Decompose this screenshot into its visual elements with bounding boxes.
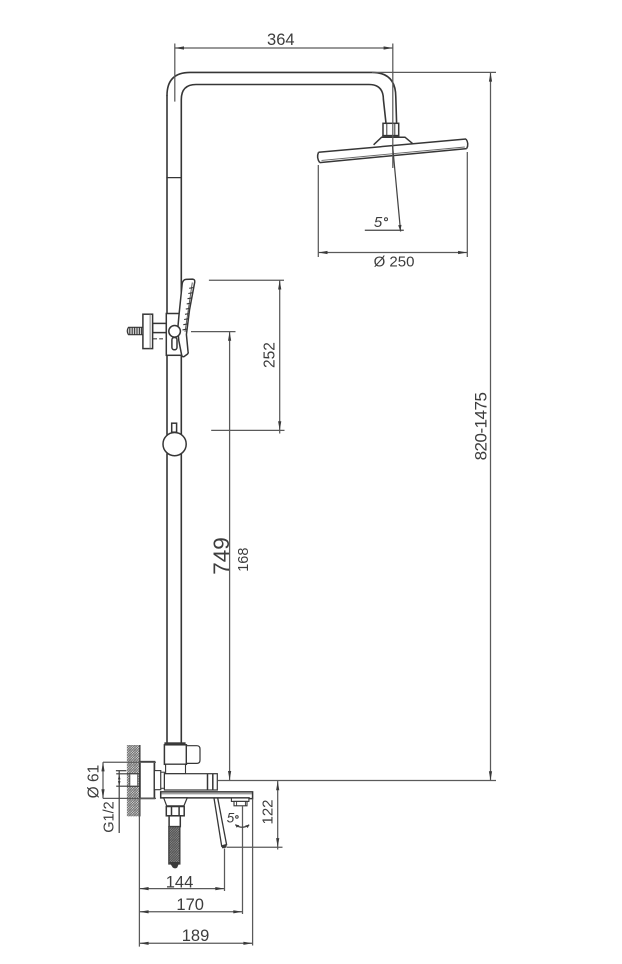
svg-text:820-1475: 820-1475 <box>472 393 491 461</box>
svg-text:144: 144 <box>166 874 194 892</box>
svg-text:170: 170 <box>176 896 204 914</box>
svg-text:122: 122 <box>260 799 277 824</box>
svg-text:252: 252 <box>261 342 278 368</box>
svg-text:749: 749 <box>209 537 234 575</box>
svg-text:G1/2: G1/2 <box>101 801 117 832</box>
svg-text:168: 168 <box>236 548 252 572</box>
svg-text:189: 189 <box>182 927 210 945</box>
svg-text:364: 364 <box>267 31 295 49</box>
svg-text:Ø 61: Ø 61 <box>86 765 103 799</box>
svg-text:Ø 250: Ø 250 <box>374 254 415 271</box>
svg-text:5: 5 <box>374 214 383 231</box>
svg-text:5: 5 <box>227 811 235 826</box>
